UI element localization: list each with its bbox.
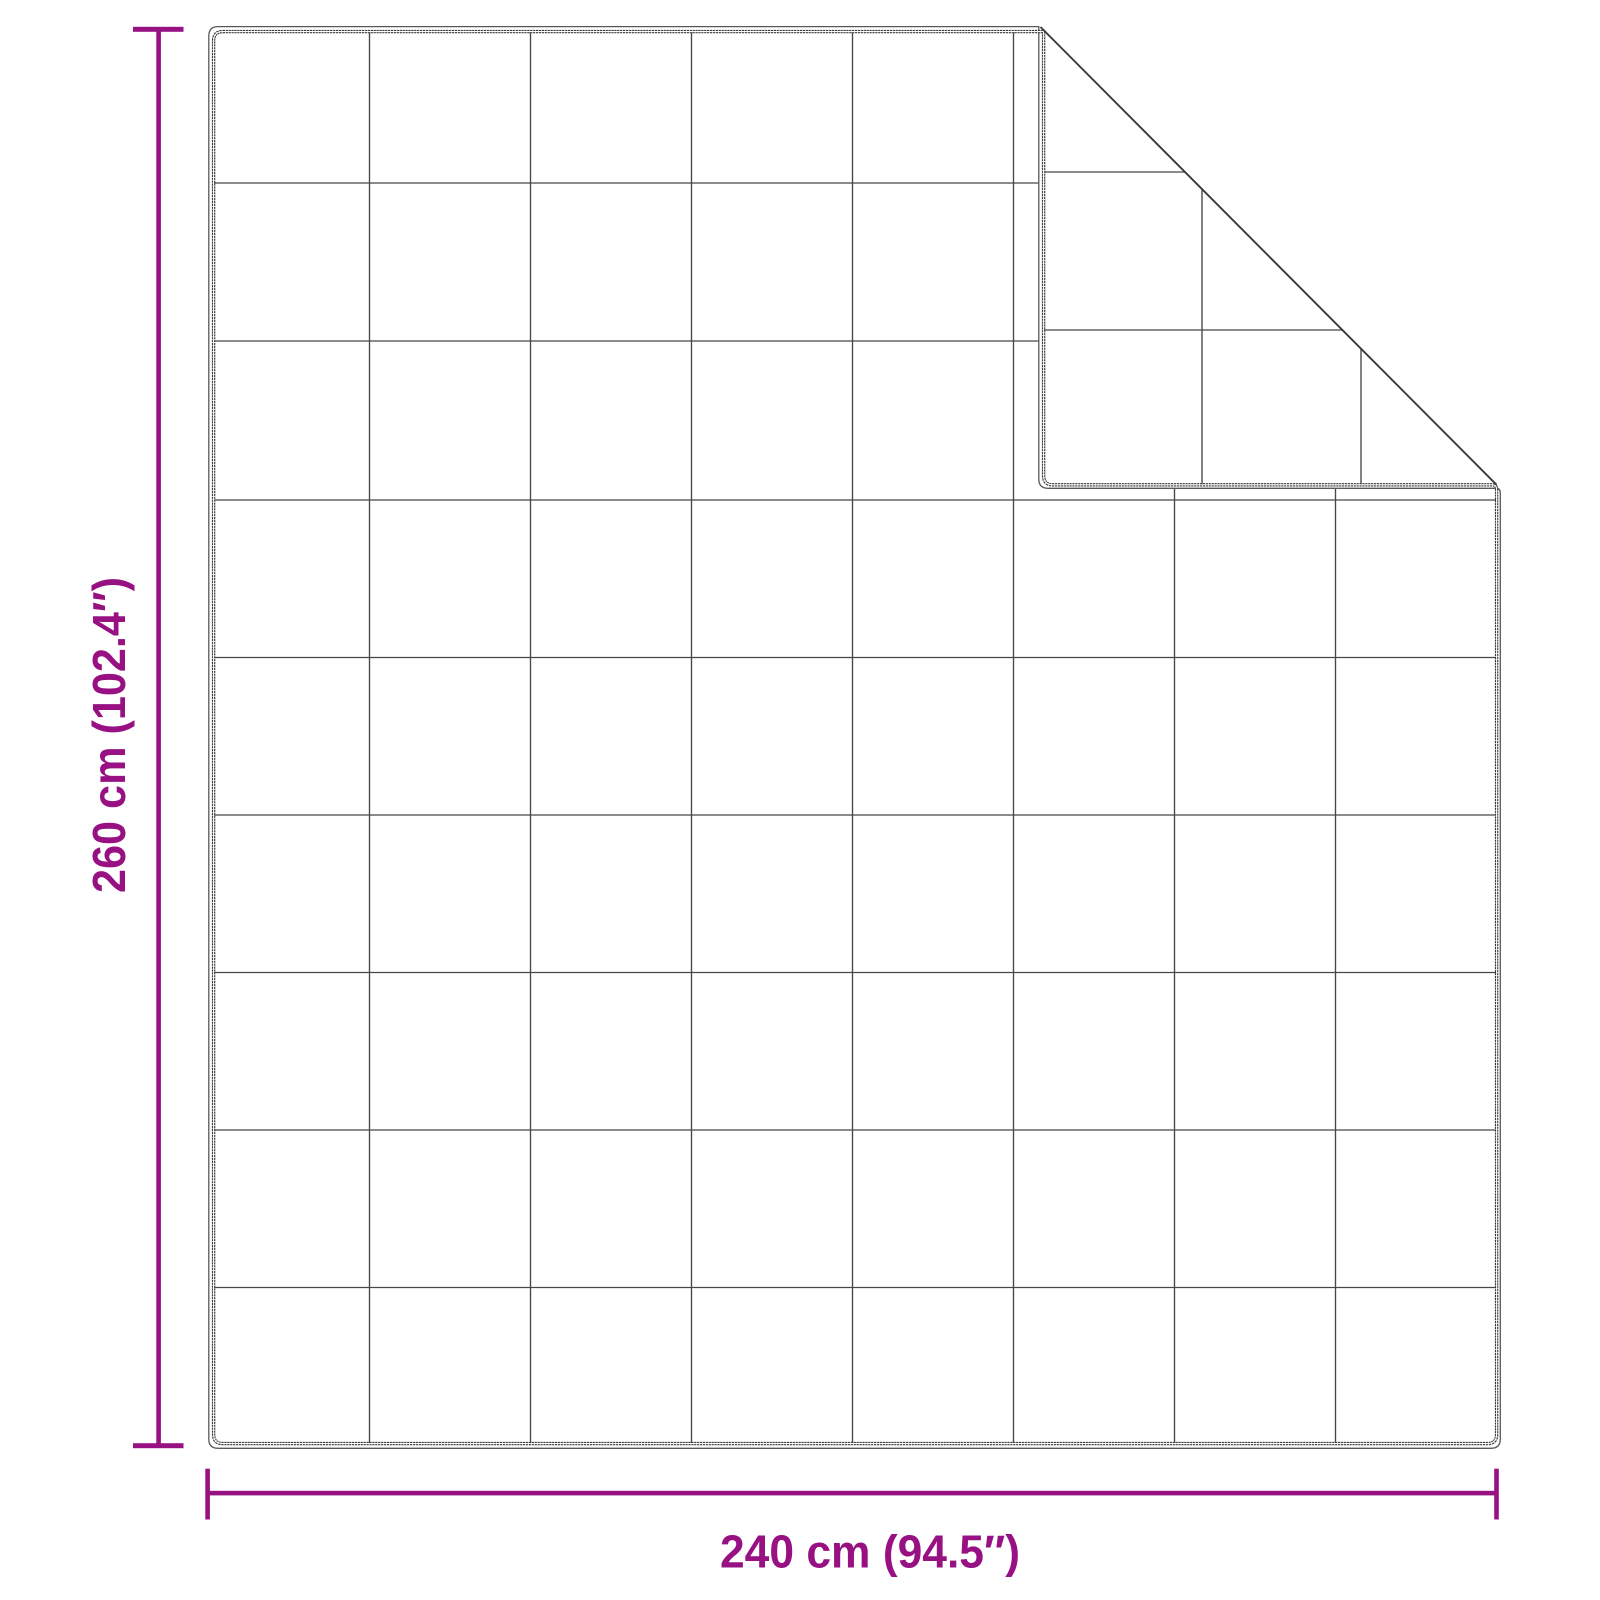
svg-text:240 cm (94.5″): 240 cm (94.5″): [720, 1525, 1020, 1577]
svg-text:260 cm (102.4″): 260 cm (102.4″): [83, 577, 135, 893]
